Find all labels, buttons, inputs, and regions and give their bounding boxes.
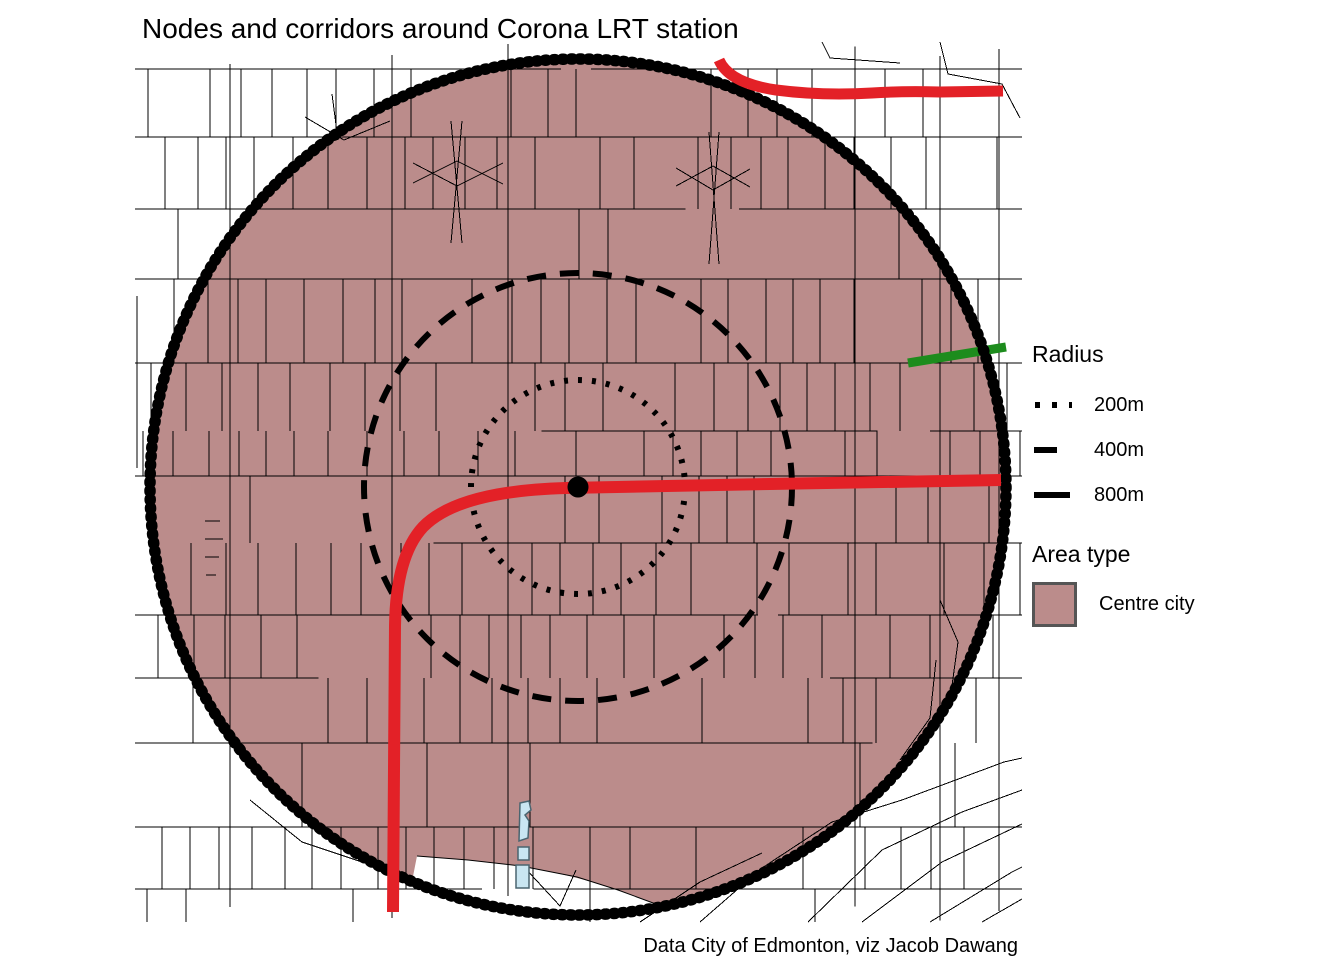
legend-item-800m: 800m: [1032, 482, 1332, 508]
data-caption: Data City of Edmonton, viz Jacob Dawang: [643, 933, 1018, 959]
legend-item-200m: 200m: [1032, 392, 1332, 418]
radius-legend-title: Radius: [1032, 340, 1332, 368]
area-type-legend-title: Area type: [1032, 540, 1332, 568]
plot-canvas: Nodes and corridors around Corona LRT st…: [0, 0, 1344, 960]
legend-label-200m: 200m: [1094, 394, 1144, 417]
solid-line-key: [1032, 490, 1072, 500]
legend-panel: Radius 200m 400m 800m Area type Centre c…: [1032, 340, 1332, 627]
legend-item-centre-city: Centre city: [1032, 582, 1332, 627]
chart-title: Nodes and corridors around Corona LRT st…: [142, 13, 739, 45]
lrt-corridor-north: [719, 60, 1003, 94]
corona-station-node: [568, 477, 589, 498]
legend-label-800m: 800m: [1094, 484, 1144, 507]
dotted-line-key: [1032, 400, 1072, 410]
centre-city-swatch: [1032, 582, 1077, 627]
legend-label-centre-city: Centre city: [1099, 593, 1195, 616]
dashed-line-key: [1032, 445, 1072, 455]
legend-label-400m: 400m: [1094, 439, 1144, 462]
legend-item-400m: 400m: [1032, 437, 1332, 463]
